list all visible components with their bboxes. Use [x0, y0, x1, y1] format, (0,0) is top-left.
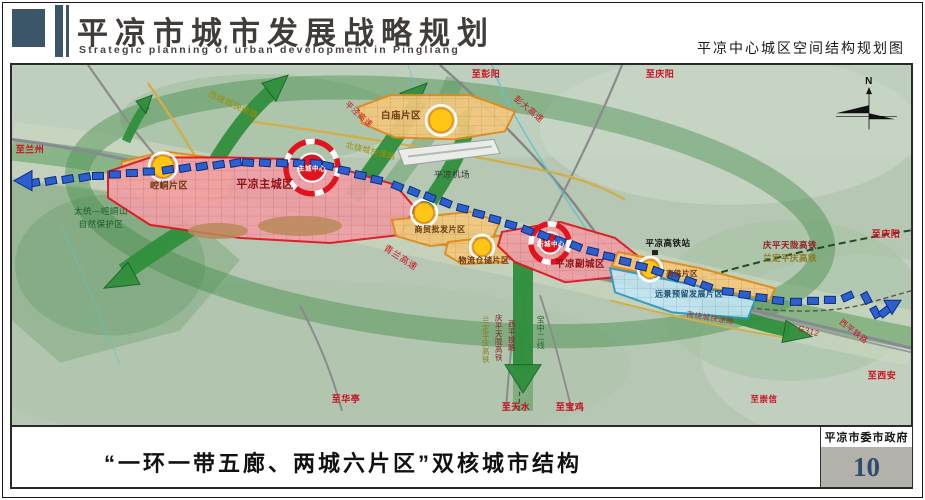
map-label: 自然保护区 — [79, 219, 124, 229]
planning-map: 至兰州至彭阳彭大高速至庆阳平泾高速西绕城快速路北绕城快速路白庙片区崆峒片区平凉主… — [12, 65, 911, 427]
publisher-box: 平凉市委市政府 10 — [820, 427, 912, 487]
map-label: 兰定平庆高铁 — [763, 253, 817, 263]
map-label: 至兰州 — [16, 143, 44, 154]
map-label: 庆平天陇高铁 — [762, 240, 817, 250]
planning-map-svg: 至兰州至彭阳彭大高速至庆阳平泾高速西绕城快速路北绕城快速路白庙片区崆峒片区平凉主… — [12, 65, 911, 425]
map-label: 崆峒片区 — [150, 180, 188, 191]
map-label: 至西安 — [868, 370, 896, 381]
logo-bar — [55, 5, 63, 57]
content-frame: 至兰州至彭阳彭大高速至庆阳平泾高速西绕城快速路北绕城快速路白庙片区崆峒片区平凉主… — [10, 63, 913, 489]
logo-mark — [12, 9, 45, 47]
map-label: 物流仓储片区 — [459, 255, 510, 265]
map-label: 白庙片区 — [381, 109, 421, 121]
map-label: 宝中二线 — [537, 314, 546, 349]
map-label: 平凉高铁站 — [646, 238, 691, 248]
sheet-title: 平凉中心城区空间结构规划图 — [697, 38, 905, 58]
map-label: 至华亭 — [332, 393, 360, 404]
map-label: 至天水 — [502, 401, 531, 412]
map-label: N — [865, 76, 873, 87]
map-label: 主城中心 — [298, 164, 326, 173]
publisher-name: 平凉市委市政府 — [821, 427, 912, 447]
map-label: 平凉主城区 — [236, 177, 293, 191]
map-label: 高铁片区 — [666, 268, 698, 278]
map-label: 平凉副城区 — [555, 258, 605, 270]
footer-caption: “一环一带五廊、两城六片区”双核城市结构 — [104, 446, 582, 478]
map-label: 庆平天陇高铁 — [495, 312, 503, 362]
map-label: 兰定平庆高铁 — [482, 314, 490, 364]
map-label: 平凉机场 — [434, 170, 470, 180]
page-number: 10 — [821, 447, 912, 487]
map-label: 至庆阳 — [872, 228, 900, 239]
map-label: 至崇信 — [751, 394, 778, 404]
map-label: 至彭阳 — [472, 68, 500, 79]
map-label: 西平铁路 — [508, 319, 516, 352]
map-label: 远景预留发展片区 — [655, 288, 723, 298]
map-label: 太统—崆峒山 — [74, 206, 128, 216]
logo-bar-thin — [66, 5, 69, 57]
map-label: 新城中心 — [537, 239, 565, 248]
map-label: 商贸批发片区 — [415, 224, 466, 234]
map-label: 至宝鸡 — [556, 401, 584, 412]
planning-document-page: 平凉市城市发展战略规划 Strategic planning of urban … — [0, 0, 925, 500]
map-label: 至庆阳 — [646, 68, 674, 79]
page-subtitle: Strategic planning of urban development … — [79, 44, 460, 56]
